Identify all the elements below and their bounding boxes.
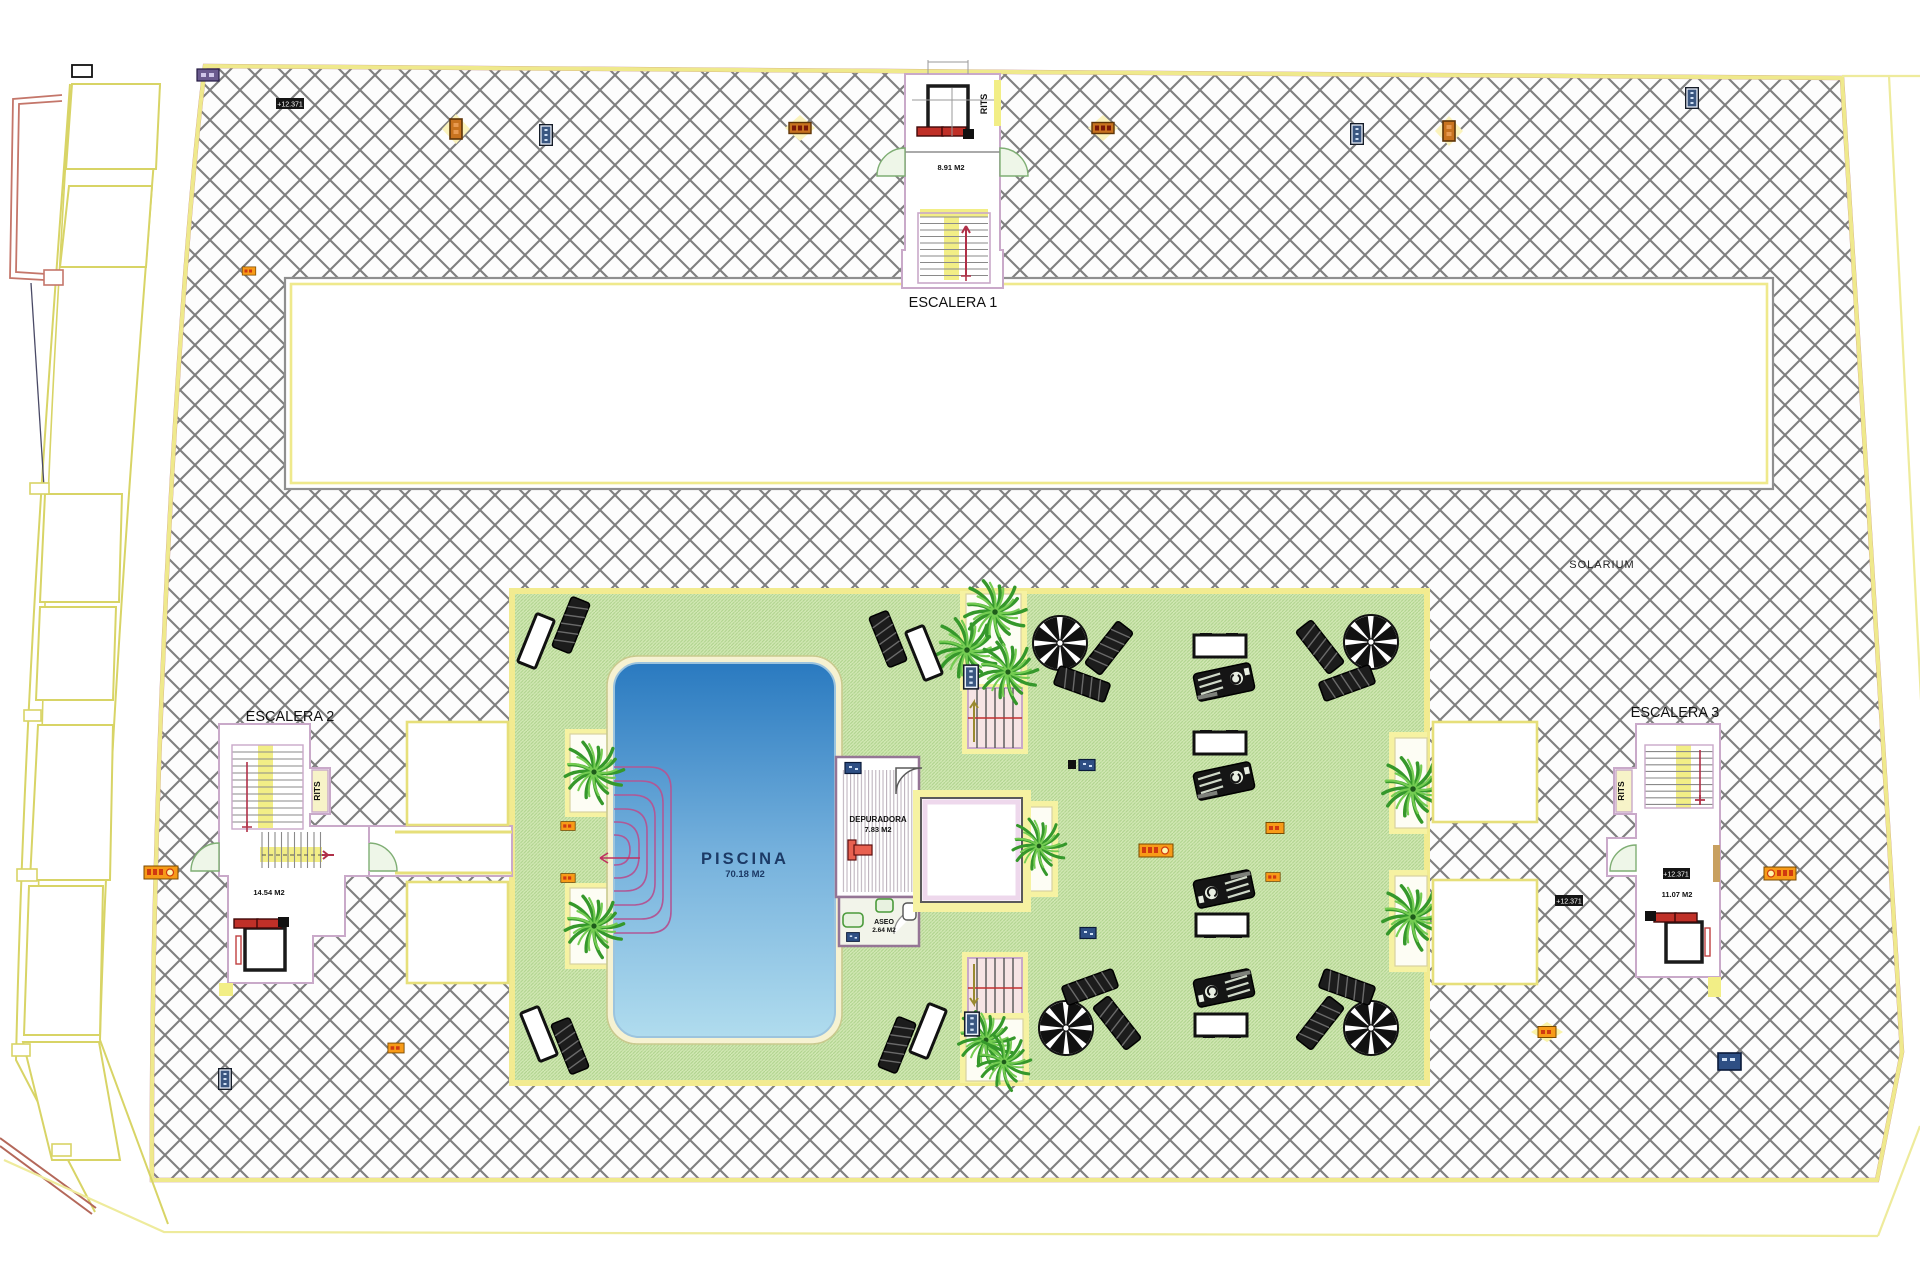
svg-text:+12.371: +12.371 (1663, 872, 1689, 879)
svg-text:ASEO: ASEO (874, 919, 894, 926)
svg-text:RITS: RITS (1616, 781, 1626, 801)
svg-text:ESCALERA 2: ESCALERA 2 (246, 709, 335, 725)
svg-text:8.91 M2: 8.91 M2 (937, 163, 964, 172)
svg-text:2.64 M2: 2.64 M2 (872, 927, 896, 934)
svg-text:DEPURADORA: DEPURADORA (849, 815, 907, 824)
svg-text:11.07 M2: 11.07 M2 (1662, 890, 1693, 899)
svg-text:RITS: RITS (312, 781, 322, 801)
svg-text:SOLARIUM: SOLARIUM (1569, 559, 1634, 571)
svg-text:+12.371: +12.371 (1556, 899, 1582, 906)
svg-text:70.18 M2: 70.18 M2 (725, 869, 765, 880)
svg-text:PISCINA: PISCINA (701, 850, 789, 868)
svg-text:7.83 M2: 7.83 M2 (864, 825, 891, 834)
svg-text:ESCALERA 3: ESCALERA 3 (1631, 705, 1720, 721)
svg-text:14.54 M2: 14.54 M2 (253, 888, 284, 897)
svg-text:ESCALERA 1: ESCALERA 1 (909, 295, 998, 311)
svg-text:RITS: RITS (979, 94, 989, 115)
svg-text:+12.371: +12.371 (277, 102, 303, 109)
